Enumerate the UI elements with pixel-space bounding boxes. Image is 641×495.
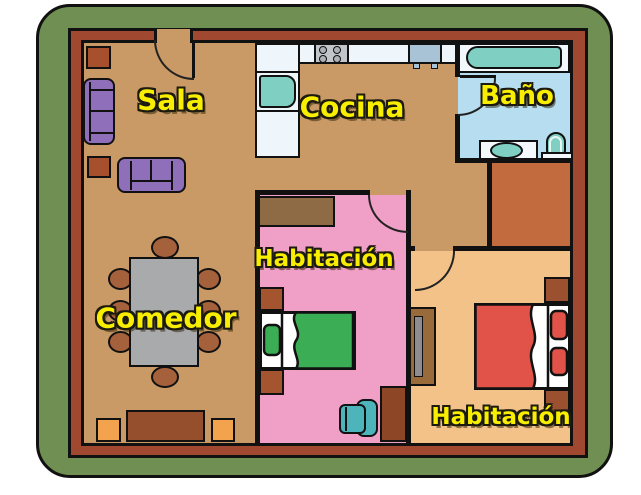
dresser-tv-slab [414,316,423,377]
counter-divider [255,71,300,73]
closet [258,196,335,227]
wall-bathroom-left-upper [455,40,460,77]
bathtub [466,46,562,69]
stove-burner [319,46,327,54]
sofa-center-line [150,160,152,182]
floor-plan: Sala Cocina Baño Habitación Comedor Habi… [0,0,641,495]
stove-burner [333,46,341,54]
bathroom-sink-basin [490,142,523,159]
kitchen-sink [259,75,296,108]
sofa-arm-line [130,161,132,190]
dining-chair [151,366,179,388]
toilet-bowl-inner [549,136,562,152]
bed-single [259,311,356,370]
wall-bedroom2-top-stub [406,246,415,251]
headboard-block [544,277,570,303]
habitacion1-label: Habitación [254,246,393,272]
counter-divider [255,110,300,112]
wall-hall-left [487,163,492,251]
nightstand [259,287,284,311]
wall-bedroom1-top [255,190,370,195]
comedor-label: Comedor [95,302,236,335]
dining-chair [196,268,221,290]
desk [380,386,407,442]
cocina-label: Cocina [300,91,405,124]
sofa-arm-line [90,89,113,91]
hall-terracotta-area [492,163,570,246]
stool [211,418,235,442]
stove-burner [319,55,327,63]
office-chair-seat-line [345,407,347,431]
wall-bathroom-left-lower [455,114,460,163]
fridge-foot [413,64,420,69]
fridge [408,43,442,64]
dining-chair [151,236,179,259]
side-table [86,46,111,69]
sala-label: Sala [137,84,205,117]
bed-double [474,303,571,390]
habitacion2-label: Habitación [431,404,570,430]
nightstand [259,369,284,395]
sideboard [126,410,205,442]
fridge-foot [431,64,438,69]
sofa-arm-line [90,132,113,134]
stool [96,418,121,442]
sofa-arm-line [171,161,173,190]
wall-bathroom-bottom [455,158,573,163]
sofa-seat-line [131,180,172,182]
wall-bedroom1-left [255,190,260,443]
side-table [87,156,111,178]
wall-bedroom2-top [453,246,573,251]
sofa-cushion-line [90,110,113,112]
office-chair-seat [339,404,366,434]
bano-label: Baño [480,81,554,111]
stove-burner [333,55,341,63]
